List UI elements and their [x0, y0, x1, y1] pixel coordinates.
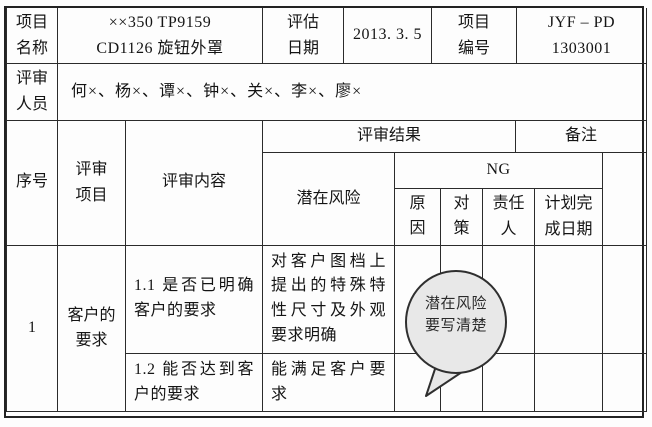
- owner-cell-1-1: [483, 245, 535, 353]
- project-no-value: JYF – PD 1303001: [517, 8, 647, 64]
- measure-cell-1-1: [441, 245, 483, 353]
- eval-date-label: 评估日期: [263, 8, 344, 64]
- cause-cell-1-2: [395, 353, 441, 412]
- reviewers-value: 何×、杨×、谭×、钟×、关×、李×、廖×: [58, 64, 647, 120]
- remarks-cell-1-2: [603, 353, 647, 412]
- remarks-subcolumn-cell: [603, 153, 647, 245]
- project-name-line1: ××350 TP9159: [62, 10, 258, 36]
- scanned-review-form: 项目名称 ××350 TP9159 CD1126 旋钮外罩 评估日期 2013.…: [0, 0, 652, 427]
- remarks-cell-1-1: [603, 245, 647, 353]
- col-potential-risk: 潜在风险: [263, 153, 395, 245]
- review-table: 序号 评审项目 评审内容 评审结果 备注 潜在风险 NG 原因 对策 责任人 计…: [6, 121, 647, 413]
- project-no-line2: 1303001: [521, 36, 642, 62]
- owner-cell-1-2: [483, 353, 535, 412]
- col-ng: NG: [395, 153, 603, 189]
- col-remarks: 备注: [516, 121, 647, 153]
- col-review-content: 评审内容: [126, 121, 263, 245]
- cause-cell-1-1: [395, 245, 441, 353]
- col-review-result: 评审结果: [263, 121, 516, 153]
- col-review-item: 评审项目: [58, 121, 126, 245]
- review-content-1-1: 1.1 是否已明确客户的要求: [126, 245, 263, 353]
- project-no-line1: JYF – PD: [521, 10, 642, 36]
- info-table: 项目名称 ××350 TP9159 CD1126 旋钮外罩 评估日期 2013.…: [6, 8, 647, 121]
- project-no-label: 项目编号: [432, 8, 517, 64]
- review-item-value: 客户的要求: [58, 245, 126, 412]
- col-countermeasure: 对策: [441, 189, 483, 245]
- serial-value: 1: [7, 245, 58, 412]
- review-content-1-2: 1.2 能否达到客户的要求: [126, 353, 263, 412]
- plan-date-cell-1-1: [535, 245, 603, 353]
- project-name-value: ××350 TP9159 CD1126 旋钮外罩: [58, 8, 263, 64]
- eval-date-value: 2013. 3. 5: [344, 8, 432, 64]
- col-responsible: 责任人: [483, 189, 535, 245]
- measure-cell-1-2: [441, 353, 483, 412]
- col-cause: 原因: [395, 189, 441, 245]
- risk-1-1: 对客户图档上提出的特殊特性尺寸及外观要求明确: [263, 245, 395, 353]
- reviewers-label: 评审人员: [7, 64, 58, 120]
- col-serial: 序号: [7, 121, 58, 245]
- risk-1-2: 能满足客户要求: [263, 353, 395, 412]
- project-name-line2: CD1126 旋钮外罩: [62, 36, 258, 62]
- col-planned-date: 计划完成日期: [535, 189, 603, 245]
- plan-date-cell-1-2: [535, 353, 603, 412]
- project-name-label: 项目名称: [7, 8, 58, 64]
- form-sheet: 项目名称 ××350 TP9159 CD1126 旋钮外罩 评估日期 2013.…: [4, 6, 644, 418]
